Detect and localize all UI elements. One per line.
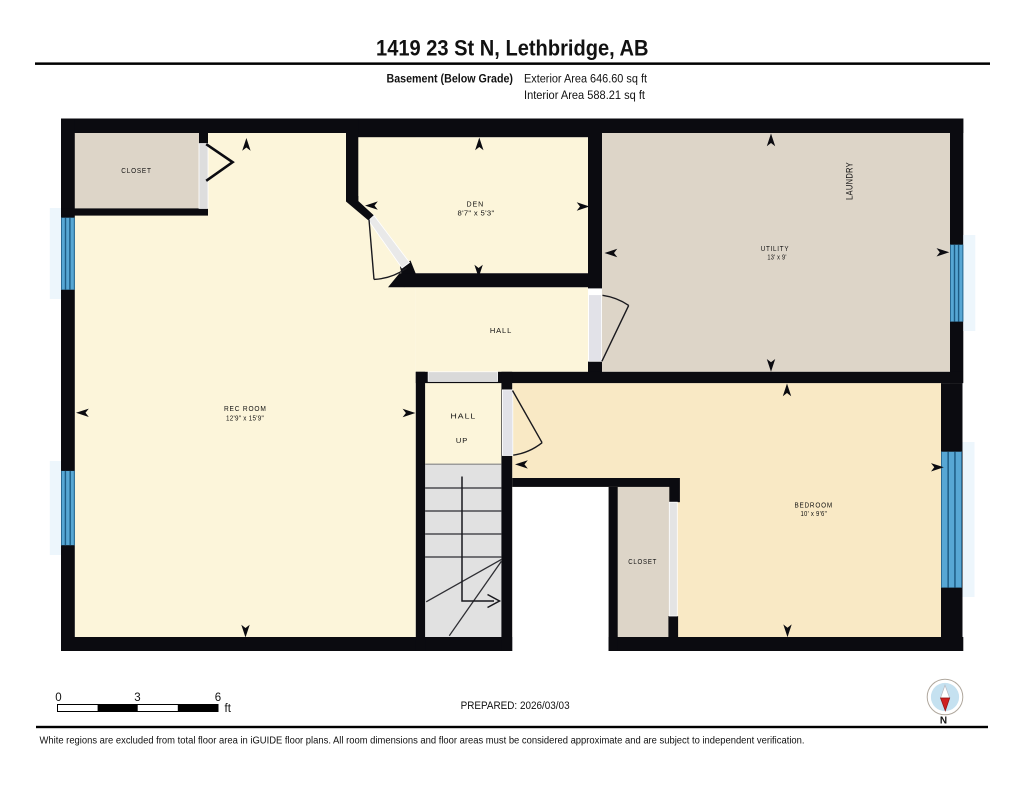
svg-text:N: N xyxy=(940,716,947,727)
svg-text:REC ROOM: REC ROOM xyxy=(224,404,267,413)
svg-text:White regions are excluded fro: White regions are excluded from total fl… xyxy=(40,736,805,747)
svg-text:UP: UP xyxy=(456,436,468,445)
svg-text:PREPARED: 2026/03/03: PREPARED: 2026/03/03 xyxy=(461,700,570,712)
svg-text:HALL: HALL xyxy=(490,326,512,335)
svg-text:BEDROOM: BEDROOM xyxy=(794,501,833,510)
svg-text:Basement (Below Grade): Basement (Below Grade) xyxy=(387,72,514,86)
svg-text:8'7" x 5'3": 8'7" x 5'3" xyxy=(458,210,495,217)
svg-text:CLOSET: CLOSET xyxy=(628,557,657,566)
svg-text:0: 0 xyxy=(55,692,61,704)
svg-text:12'9" x 15'9": 12'9" x 15'9" xyxy=(226,416,264,423)
svg-text:LAUNDRY: LAUNDRY xyxy=(845,162,855,200)
svg-text:HALL: HALL xyxy=(451,412,477,421)
svg-text:Interior Area 588.21 sq ft: Interior Area 588.21 sq ft xyxy=(524,88,646,102)
svg-text:DEN: DEN xyxy=(467,200,485,209)
svg-text:6: 6 xyxy=(215,692,221,704)
svg-text:CLOSET: CLOSET xyxy=(121,166,151,175)
svg-text:10' x 9'6": 10' x 9'6" xyxy=(800,511,827,518)
svg-text:1419 23 St N, Lethbridge, AB: 1419 23 St N, Lethbridge, AB xyxy=(376,36,649,61)
svg-text:13' x 9': 13' x 9' xyxy=(767,254,786,261)
svg-text:UTILITY: UTILITY xyxy=(761,244,790,253)
svg-text:Exterior Area 646.60 sq ft: Exterior Area 646.60 sq ft xyxy=(524,72,648,86)
svg-text:ft: ft xyxy=(225,703,232,715)
svg-text:3: 3 xyxy=(134,692,140,704)
